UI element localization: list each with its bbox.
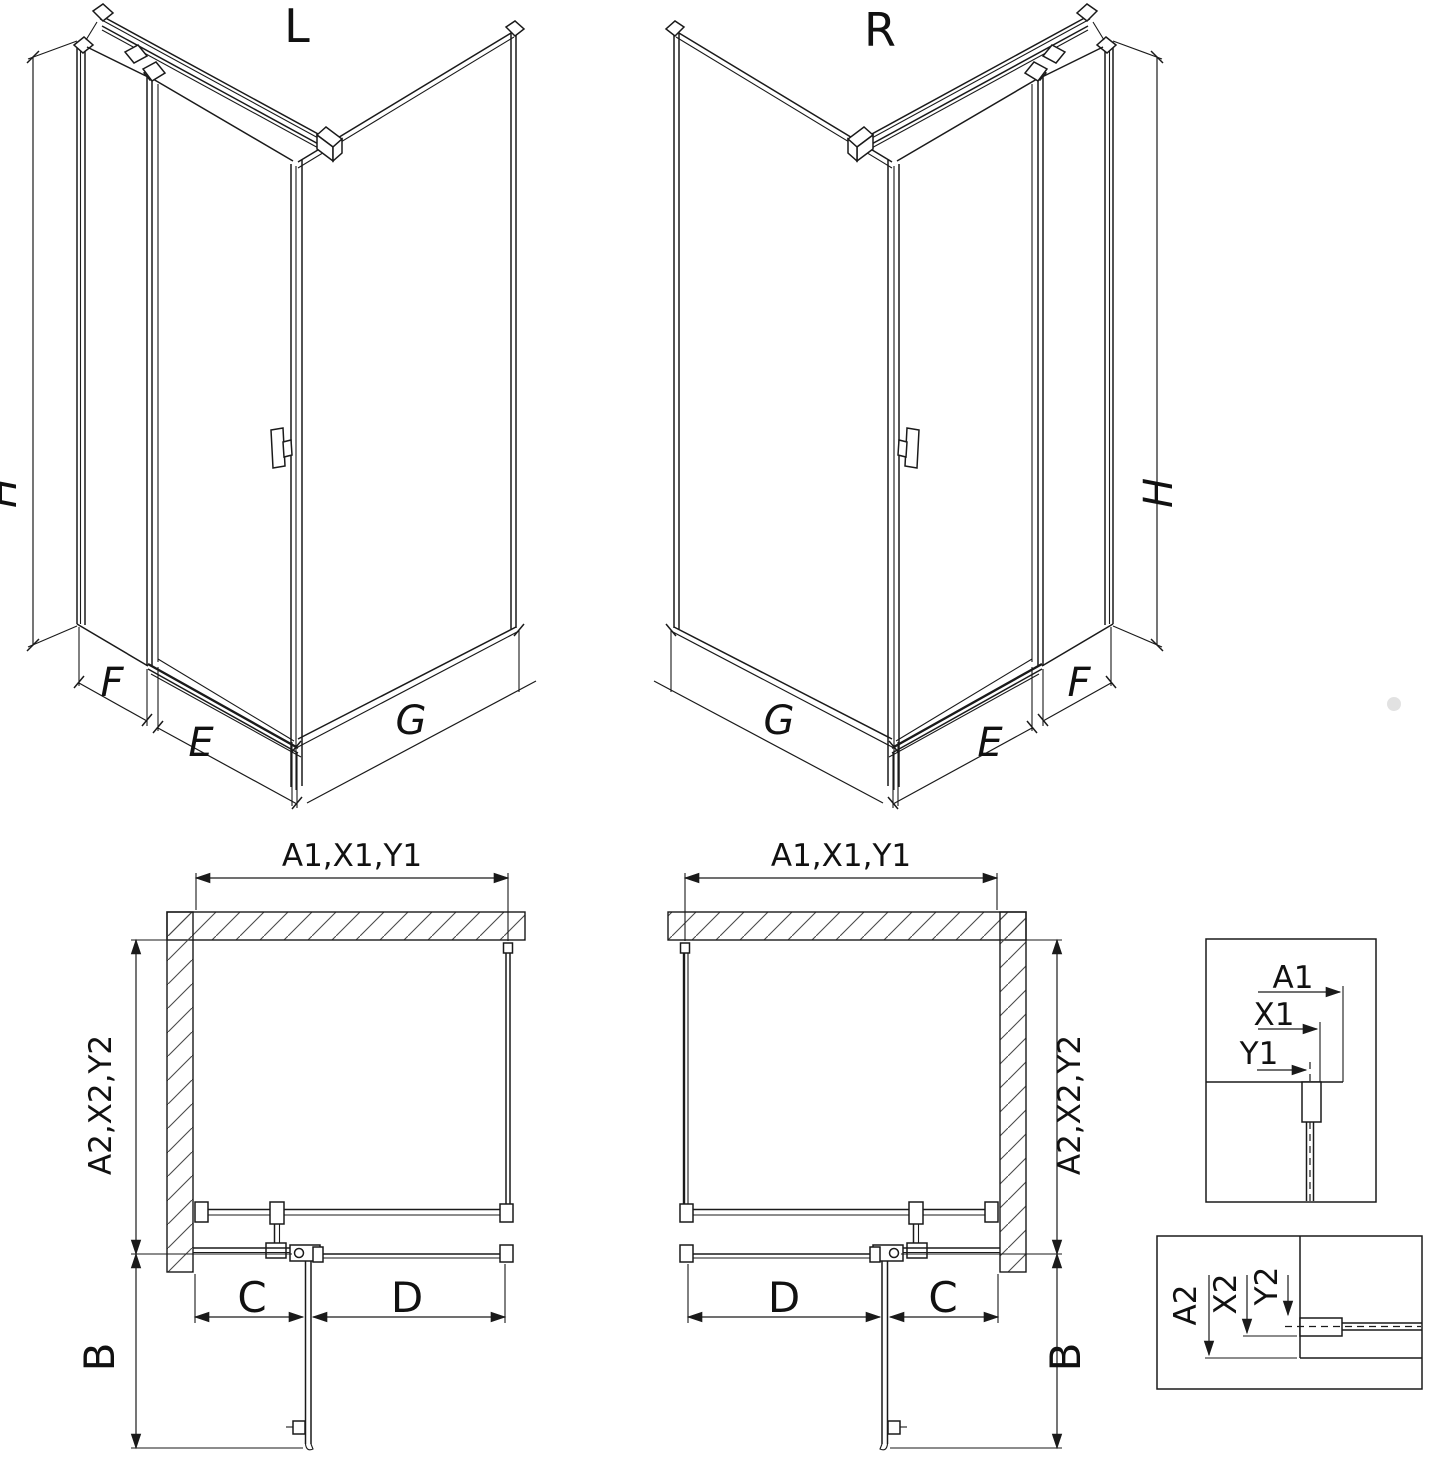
plan-right-top-dim: A1,X1,Y1 xyxy=(771,838,911,874)
detail-x1-label: X1 xyxy=(1254,997,1295,1033)
side-panel-dim-left: F xyxy=(100,660,124,706)
plan-left-side-dim: A2,X2,Y2 xyxy=(83,1035,119,1175)
height-dim-label-left: H xyxy=(0,478,26,508)
plan-right-c: C xyxy=(928,1273,957,1322)
technical-drawing: L R H H F E G G E F xyxy=(0,0,1430,1460)
detail-y1-label: Y1 xyxy=(1239,1036,1279,1072)
detail-a1-label: A1 xyxy=(1273,960,1314,996)
return-panel-dim-left: G xyxy=(396,698,427,744)
left-plan-view xyxy=(131,873,525,1450)
plan-left-top-dim: A1,X1,Y1 xyxy=(282,838,422,874)
detail-a2-label: A2 xyxy=(1168,1285,1204,1326)
height-dim-label-right: H xyxy=(1136,478,1182,508)
plan-left-c: C xyxy=(237,1273,266,1322)
door-dim-left: E xyxy=(188,720,214,766)
plan-right-d: D xyxy=(768,1273,800,1322)
right-view-title: R xyxy=(864,3,896,57)
return-panel-dim-right: G xyxy=(764,698,795,744)
detail-x2-label: X2 xyxy=(1208,1274,1244,1315)
watermark-dot xyxy=(1387,697,1401,711)
plan-left-b: B xyxy=(75,1343,124,1372)
drawing-canvas: L R H H F E G G E F xyxy=(0,0,1430,1460)
plan-right-b: B xyxy=(1041,1343,1090,1372)
side-panel-dim-right: F xyxy=(1067,660,1091,706)
left-view-title: L xyxy=(284,0,310,53)
plan-right-side-dim: A2,X2,Y2 xyxy=(1052,1035,1088,1175)
detail-y2-label: Y2 xyxy=(1249,1267,1285,1307)
plan-left-d: D xyxy=(391,1273,423,1322)
right-plan-view xyxy=(668,873,1062,1450)
door-dim-right: E xyxy=(977,720,1003,766)
